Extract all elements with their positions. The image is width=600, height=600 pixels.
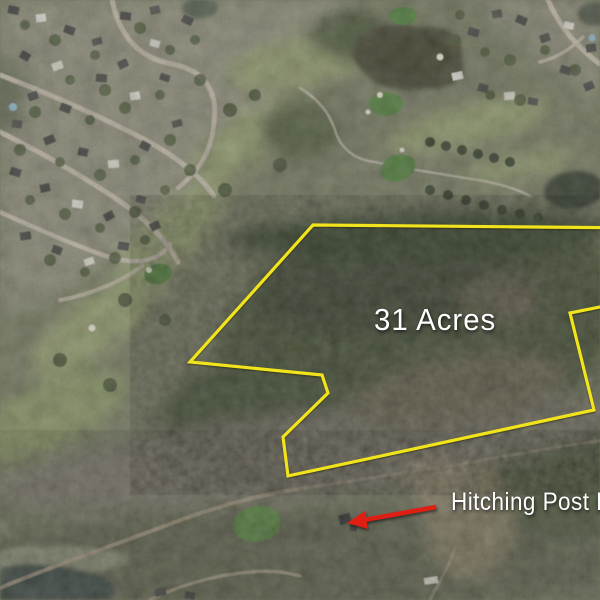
property-boundary-outline bbox=[190, 225, 600, 476]
arrow-head bbox=[347, 511, 368, 529]
acreage-label: 31 Acres bbox=[374, 302, 496, 338]
street-label: Hitching Post L bbox=[451, 488, 600, 517]
pointer-arrow bbox=[347, 507, 436, 529]
arrow-shaft bbox=[364, 507, 436, 520]
aerial-map: 31 Acres Hitching Post L bbox=[0, 0, 600, 600]
